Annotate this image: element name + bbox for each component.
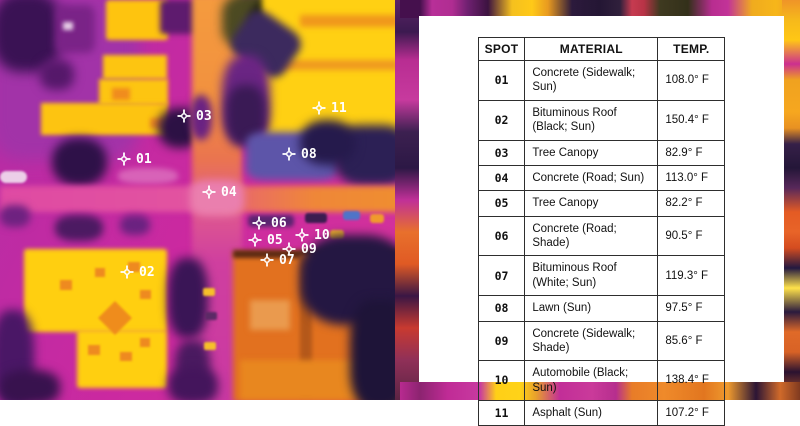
spot-cell: 04 [478, 165, 525, 190]
thermal-region [118, 168, 178, 184]
spot-cell: 06 [478, 216, 525, 256]
thermal-region [0, 370, 60, 400]
spot-cell: 09 [478, 321, 525, 361]
material-cell: Concrete (Road; Shade) [525, 216, 658, 256]
table-body: 01Concrete (Sidewalk; Sun)108.0° F02Bitu… [478, 61, 725, 426]
header-spot: SPOT [478, 38, 525, 61]
temp-cell: 108.0° F [658, 61, 725, 101]
spot-cell: 08 [478, 296, 525, 321]
temp-cell: 82.9° F [658, 140, 725, 165]
table-row: 02Bituminous Roof (Black; Sun)150.4° F [478, 100, 725, 140]
thermal-region [52, 138, 107, 186]
thermal-region [103, 55, 167, 79]
thermal-region [41, 103, 168, 135]
thermal-region [88, 345, 100, 355]
spot-cell: 01 [478, 61, 525, 101]
thermal-region [55, 215, 103, 241]
thermal-region [95, 268, 105, 277]
material-cell: Tree Canopy [525, 191, 658, 216]
spot-table: SPOT MATERIAL TEMP. 01Concrete (Sidewalk… [478, 37, 726, 426]
thermal-region [203, 288, 215, 296]
spot-cell: 11 [478, 401, 525, 426]
temp-cell: 85.6° F [658, 321, 725, 361]
material-cell: Asphalt (Sun) [525, 401, 658, 426]
thermal-region [190, 95, 212, 140]
thermal-region [140, 338, 150, 347]
table-row: 01Concrete (Sidewalk; Sun)108.0° F [478, 61, 725, 101]
thermal-region [300, 120, 355, 165]
thermal-region [60, 280, 72, 290]
temp-cell: 97.5° F [658, 296, 725, 321]
thermal-region [250, 300, 290, 330]
table-row: 04Concrete (Road; Sun)113.0° F [478, 165, 725, 190]
thermal-region [140, 290, 151, 299]
header-material: MATERIAL [525, 38, 658, 61]
temp-cell: 150.4° F [658, 100, 725, 140]
table-row: 03Tree Canopy82.9° F [478, 140, 725, 165]
spot-cell: 02 [478, 100, 525, 140]
table-row: 07Bituminous Roof (White; Sun)119.3° F [478, 256, 725, 296]
thermal-region [343, 211, 360, 220]
thermal-region [168, 258, 208, 338]
temp-cell: 119.3° F [658, 256, 725, 296]
temp-cell: 107.2° F [658, 401, 725, 426]
spot-cell: 05 [478, 191, 525, 216]
thermal-edge-strip-right [782, 0, 800, 400]
material-cell: Tree Canopy [525, 140, 658, 165]
thermal-region [370, 214, 384, 223]
material-cell: Concrete (Sidewalk; Shade) [525, 321, 658, 361]
thermal-edge-strip-left [395, 0, 422, 400]
table-header: SPOT MATERIAL TEMP. [478, 38, 725, 61]
table-row: 06Concrete (Road; Shade)90.5° F [478, 216, 725, 256]
thermal-region [0, 171, 27, 183]
thermal-region [0, 205, 30, 227]
spot-cell: 10 [478, 361, 525, 401]
material-cell: Bituminous Roof (Black; Sun) [525, 100, 658, 140]
thermal-region [128, 262, 140, 272]
temp-cell: 113.0° F [658, 165, 725, 190]
header-temp: TEMP. [658, 38, 725, 61]
thermal-region [168, 368, 218, 400]
temp-cell: 138.4° F [658, 361, 725, 401]
thermal-region [40, 60, 74, 90]
material-cell: Automobile (Black; Sun) [525, 361, 658, 401]
material-cell: Bituminous Roof (White; Sun) [525, 256, 658, 296]
thermal-region [190, 180, 244, 216]
thermal-region [55, 5, 95, 53]
table-row: 10Automobile (Black; Sun)138.4° F [478, 361, 725, 401]
thermal-region [300, 15, 400, 27]
temp-cell: 82.2° F [658, 191, 725, 216]
thermal-region [99, 79, 168, 105]
table-row: 11Asphalt (Sun)107.2° F [478, 401, 725, 426]
spot-cell: 03 [478, 140, 525, 165]
material-cell: Lawn (Sun) [525, 296, 658, 321]
thermal-region [106, 0, 168, 40]
thermal-region [112, 88, 130, 100]
table-row: 09Concrete (Sidewalk; Shade)85.6° F [478, 321, 725, 361]
thermal-region [120, 215, 150, 235]
thermal-region [248, 215, 294, 227]
thermal-region [63, 22, 73, 30]
thermal-region [205, 312, 217, 320]
material-cell: Concrete (Road; Sun) [525, 165, 658, 190]
thermal-region [120, 352, 132, 361]
spot-cell: 07 [478, 256, 525, 296]
material-cell: Concrete (Sidewalk; Sun) [525, 61, 658, 101]
thermal-region [204, 342, 216, 350]
data-card: SPOT MATERIAL TEMP. 01Concrete (Sidewalk… [419, 16, 784, 382]
temp-cell: 90.5° F [658, 216, 725, 256]
thermal-region [305, 213, 327, 223]
table-row: 08Lawn (Sun)97.5° F [478, 296, 725, 321]
table-row: 05Tree Canopy82.2° F [478, 191, 725, 216]
